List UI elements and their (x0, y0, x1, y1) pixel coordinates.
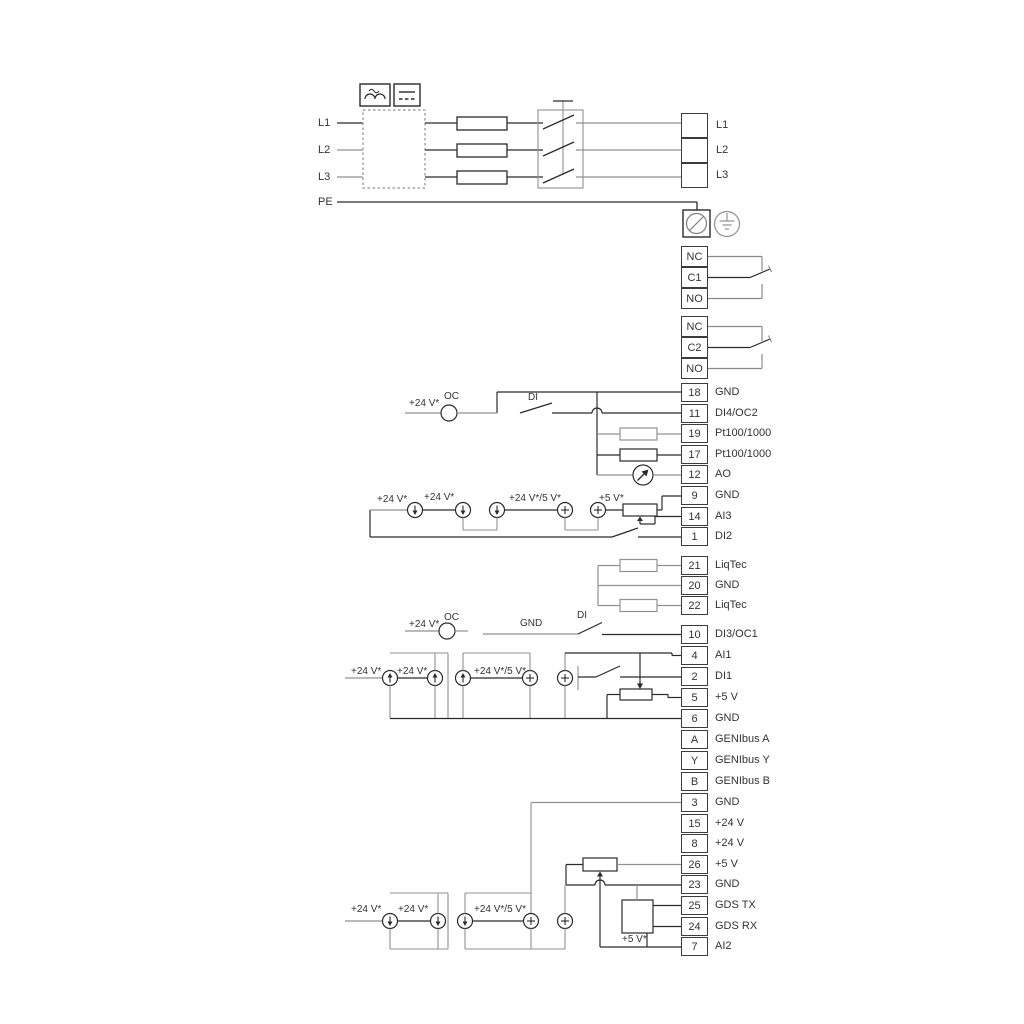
oc-label-di3: OC (444, 613, 459, 623)
terminal-15: 15 (681, 814, 708, 833)
mains-label-l2: L2 (716, 138, 728, 163)
v24-5-label-r2: +24 V*/5 V* (474, 667, 526, 677)
terminal-a: A (681, 730, 708, 749)
mains-terminal-l1 (681, 113, 708, 138)
dc-symbol-icon (394, 84, 420, 106)
mains-label-l3: L3 (716, 163, 728, 188)
pt100-sensor-2 (597, 449, 681, 461)
ai1-source-row (345, 653, 573, 719)
terminal-10: 10 (681, 625, 708, 644)
liqtec-sensor-1 (598, 560, 681, 572)
v24-label-di4: +24 V* (409, 399, 439, 409)
terminal-1-label: DI2 (715, 527, 732, 546)
terminal-9-label: GND (715, 486, 739, 505)
terminal-b-label: GENIbus B (715, 772, 770, 791)
wiring-diagram: L1 L2 L3 PE L1 L2 L3 NC C1 NO NC C2 NO 1… (0, 0, 1024, 1024)
v24-label-r2b: +24 V* (397, 667, 427, 677)
ac-symbol-icon (360, 84, 390, 106)
v24-5-label-r3: +24 V*/5 V* (474, 905, 526, 915)
ao-meter (597, 465, 681, 485)
terminal-20-label: GND (715, 576, 739, 595)
liqtec-sensor-2 (598, 600, 681, 612)
relay1-contact (708, 257, 772, 299)
terminal-2: 2 (681, 667, 708, 686)
di3-oc1-circuit (405, 623, 681, 640)
relay2-nc: NC (681, 316, 708, 337)
di-label-di4: DI (528, 393, 538, 403)
input-label-l2: L2 (318, 143, 330, 157)
terminal-19-label: Pt100/1000 (715, 424, 771, 443)
pt100-sensor-1 (597, 428, 681, 440)
terminal-23: 23 (681, 875, 708, 894)
di1-switch (578, 666, 681, 690)
v24-label-r3b: +24 V* (398, 905, 428, 915)
terminal-3: 3 (681, 793, 708, 812)
terminal-4: 4 (681, 646, 708, 665)
ai2-source-row (345, 803, 573, 950)
di-label-di3: DI (577, 611, 587, 621)
terminal-y: Y (681, 751, 708, 770)
gnd23-line (566, 880, 681, 885)
earth-icon (715, 212, 740, 237)
pe-terminal (683, 210, 710, 237)
ai1-potentiometer (565, 653, 681, 719)
terminal-20: 20 (681, 576, 708, 595)
terminal-25-label: GDS TX (715, 896, 756, 915)
terminal-9: 9 (681, 486, 708, 505)
relay1-no: NO (681, 288, 708, 309)
terminal-7-label: AI2 (715, 937, 732, 956)
relay1-nc: NC (681, 246, 708, 267)
fuses (457, 117, 543, 184)
terminal-10-label: DI3/OC1 (715, 625, 758, 644)
terminal-12-label: AO (715, 465, 731, 484)
terminal-11-label: DI4/OC2 (715, 404, 758, 423)
v5-label-gds: +5 V* (622, 935, 647, 945)
terminal-17: 17 (681, 445, 708, 464)
terminal-19: 19 (681, 424, 708, 443)
relay2-no: NO (681, 358, 708, 379)
relay2-c2: C2 (681, 337, 708, 358)
terminal-23-label: GND (715, 875, 739, 894)
terminal-b: B (681, 772, 708, 791)
terminal-11: 11 (681, 404, 708, 423)
terminal-21-label: LiqTec (715, 556, 747, 575)
terminal-24-label: GDS RX (715, 917, 757, 936)
v24-label-r2a: +24 V* (351, 667, 381, 677)
mains-terminal-l2 (681, 138, 708, 163)
v24-label-r1b: +24 V* (424, 493, 454, 503)
terminal-18: 18 (681, 383, 708, 402)
terminal-21: 21 (681, 556, 708, 575)
relay2-contact (708, 327, 772, 369)
converter-output-lines (425, 123, 457, 177)
terminal-22-label: LiqTec (715, 596, 747, 615)
terminal-6: 6 (681, 709, 708, 728)
terminal-1: 1 (681, 527, 708, 546)
mains-terminal-l3 (681, 163, 708, 188)
v24-5-label-r1: +24 V*/5 V* (509, 494, 561, 504)
terminal-22: 22 (681, 596, 708, 615)
mains-label-l1: L1 (716, 113, 728, 138)
terminal-3-label: GND (715, 793, 739, 812)
terminal-26: 26 (681, 855, 708, 874)
main-switch (538, 101, 681, 188)
terminal-12: 12 (681, 465, 708, 484)
terminal-24: 24 (681, 917, 708, 936)
terminal-5-label: +5 V (715, 688, 738, 707)
ai3-source-row (370, 503, 623, 538)
v24-label-di3: +24 V* (409, 620, 439, 630)
terminal-y-label: GENIbus Y (715, 751, 770, 770)
input-label-pe: PE (318, 195, 333, 209)
v5-label-r1: +5 V* (599, 494, 624, 504)
terminal-14: 14 (681, 507, 708, 526)
gnd-label-di3: GND (520, 619, 542, 629)
mains-input-lines (337, 123, 697, 210)
terminal-14-label: AI3 (715, 507, 732, 526)
terminal-17-label: Pt100/1000 (715, 445, 771, 464)
di2-switch (370, 528, 681, 537)
terminal-4-label: AI1 (715, 646, 732, 665)
terminal-25: 25 (681, 896, 708, 915)
input-label-l3: L3 (318, 170, 330, 184)
oc-label-di4: OC (444, 392, 459, 402)
terminal-7: 7 (681, 937, 708, 956)
converter-box (363, 110, 425, 188)
terminal-a-label: GENIbus A (715, 730, 769, 749)
terminal-8: 8 (681, 834, 708, 853)
terminal-8-label: +24 V (715, 834, 744, 853)
input-label-l1: L1 (318, 116, 330, 130)
v24-label-r3a: +24 V* (351, 905, 381, 915)
wiring-svg (0, 0, 1024, 1024)
terminal-15-label: +24 V (715, 814, 744, 833)
terminal-26-label: +5 V (715, 855, 738, 874)
terminal-18-label: GND (715, 383, 739, 402)
terminal-6-label: GND (715, 709, 739, 728)
relay1-c1: C1 (681, 267, 708, 288)
v24-label-r1a: +24 V* (377, 495, 407, 505)
terminal-5: 5 (681, 688, 708, 707)
terminal-2-label: DI1 (715, 667, 732, 686)
ai3-potentiometer (623, 496, 681, 524)
